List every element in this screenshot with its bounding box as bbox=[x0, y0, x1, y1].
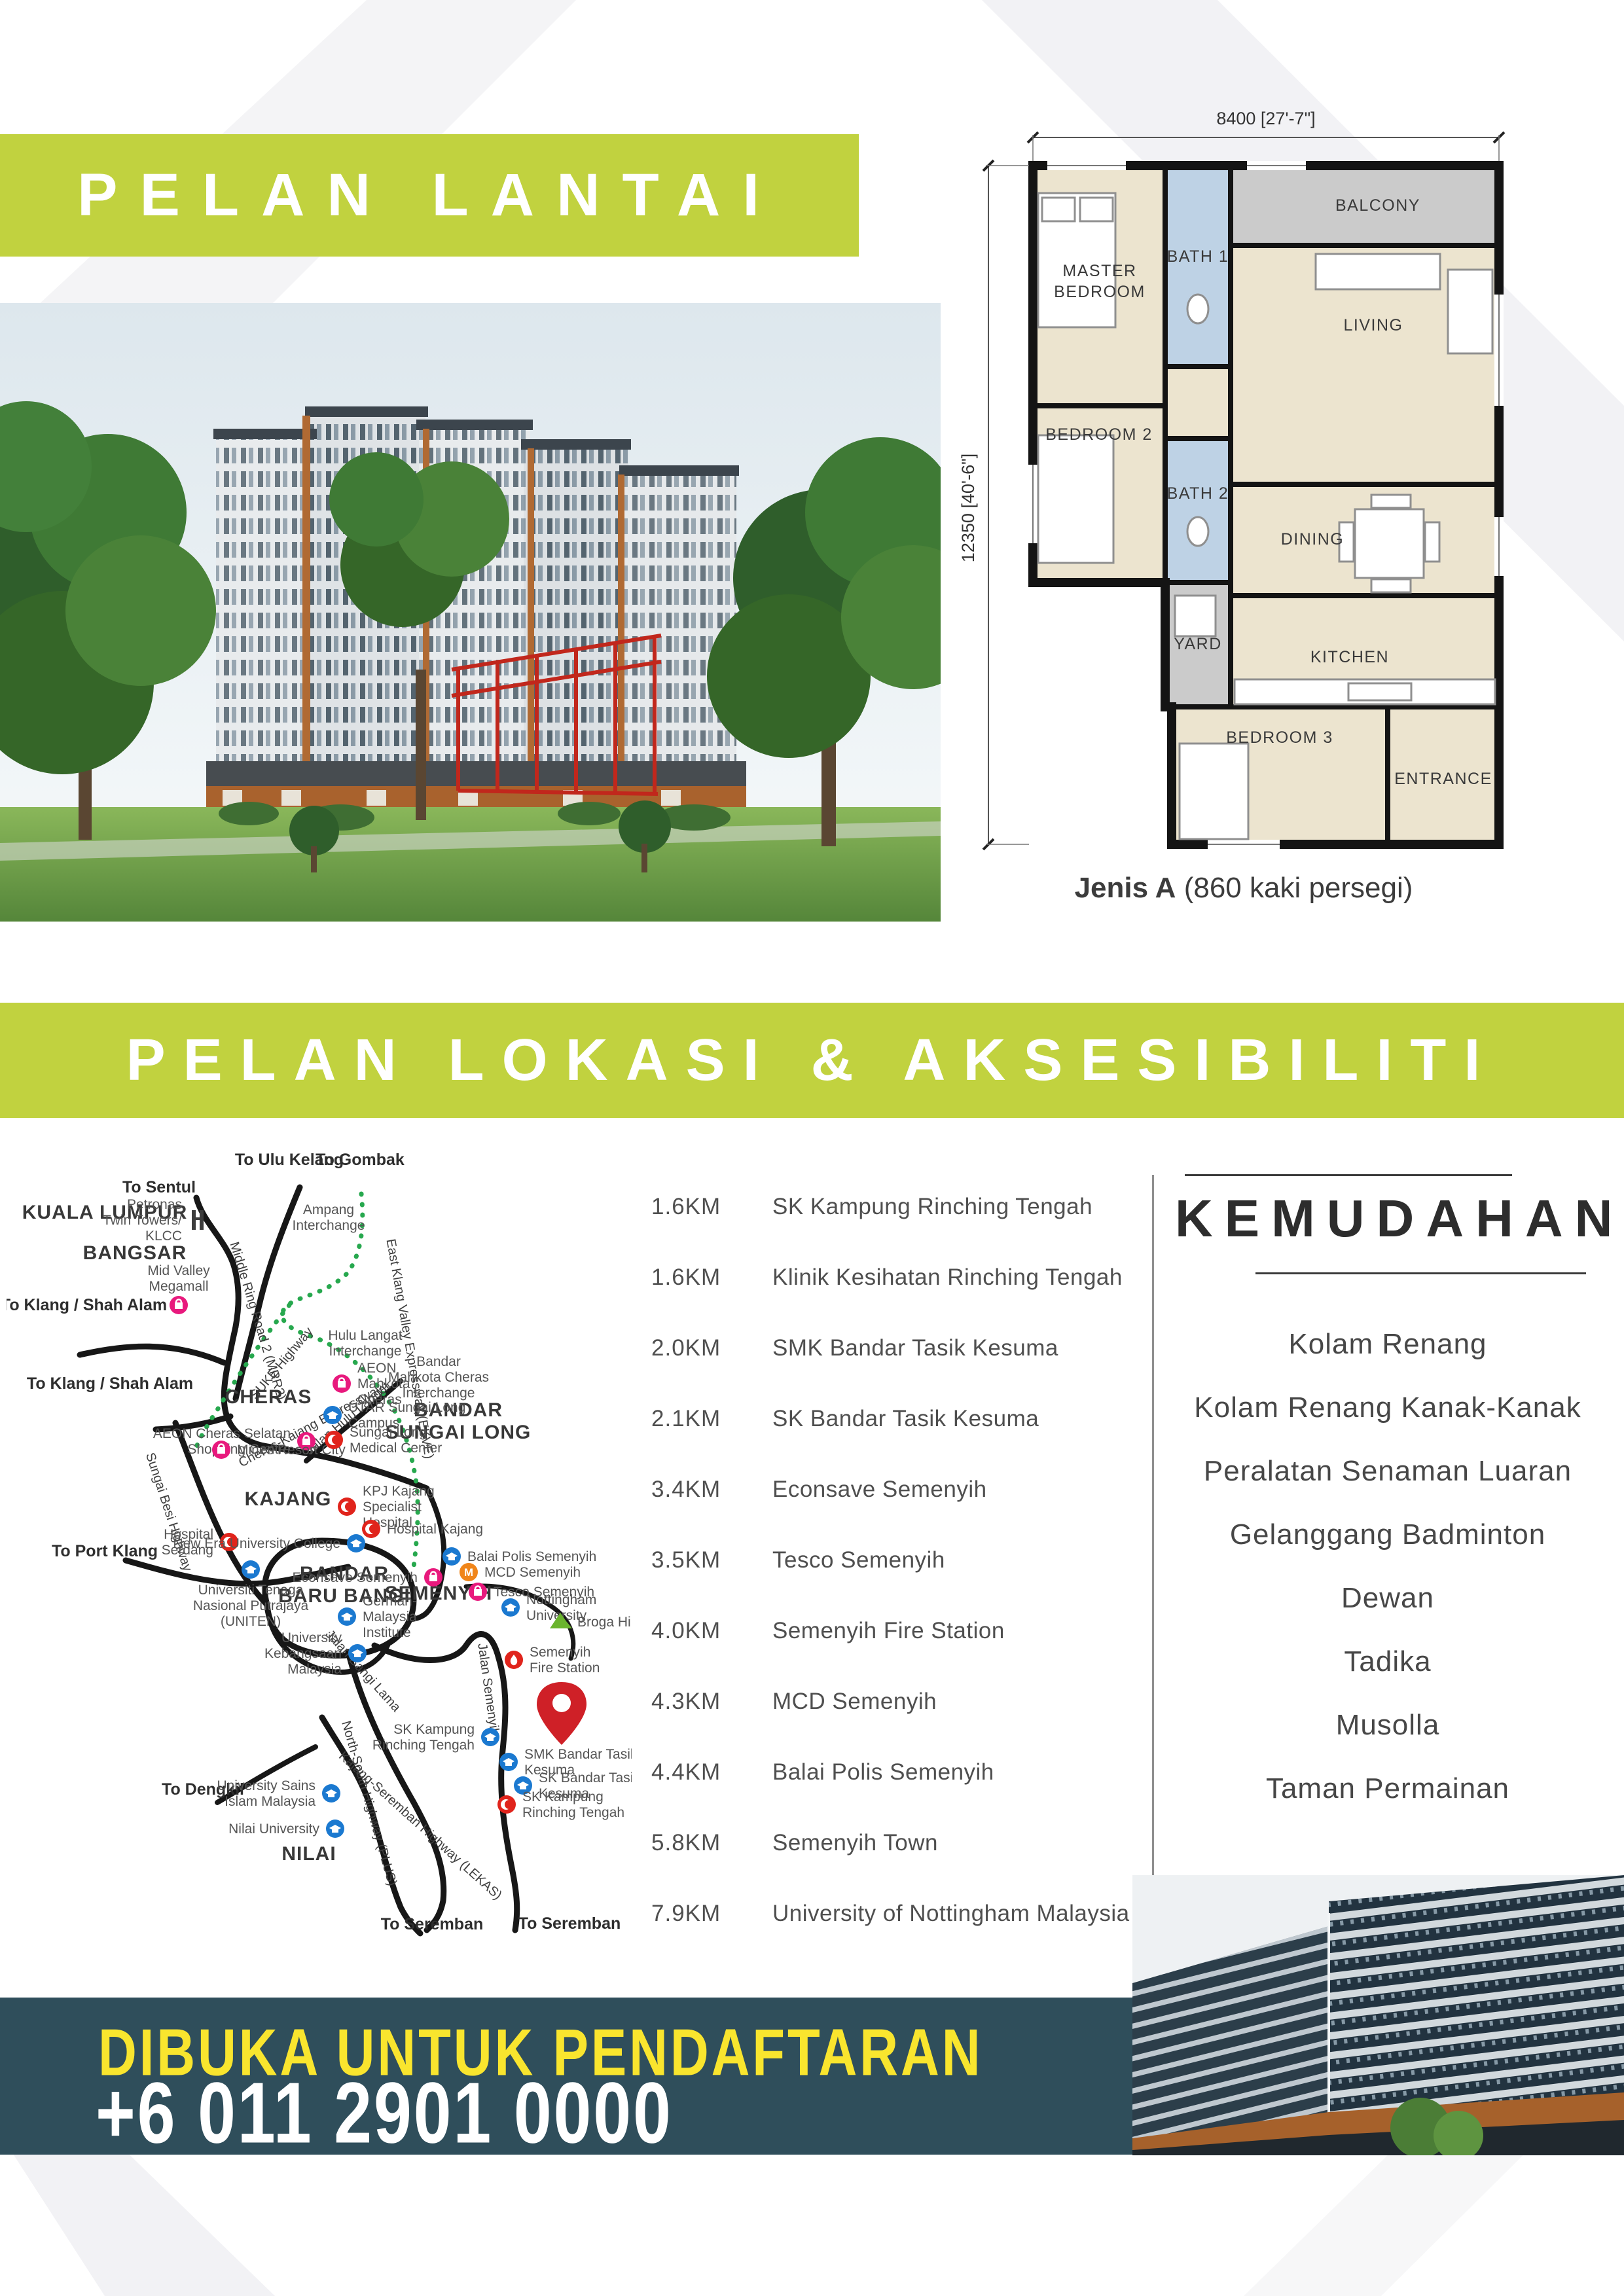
svg-text:New Era University College: New Era University College bbox=[173, 1536, 340, 1551]
distance-value: 2.1KM bbox=[651, 1406, 772, 1432]
location-section-band: PELAN LOKASI & AKSESIBILITI bbox=[0, 1003, 1624, 1118]
facility-item: Musolla bbox=[1166, 1693, 1609, 1757]
svg-text:CHERAS: CHERAS bbox=[225, 1386, 312, 1408]
svg-text:Mahkota Cheras: Mahkota Cheras bbox=[388, 1370, 489, 1385]
facilities-rule-bottom bbox=[1255, 1272, 1586, 1274]
distance-value: 3.4KM bbox=[651, 1477, 772, 1503]
svg-text:Bandar: Bandar bbox=[416, 1354, 461, 1369]
svg-text:SK Kampung: SK Kampung bbox=[522, 1789, 604, 1804]
svg-text:AEON Cheras Selatan: AEON Cheras Selatan bbox=[153, 1426, 291, 1441]
distance-row: 3.5KMTesco Semenyih bbox=[651, 1525, 1150, 1596]
unit-type-label: Jenis A bbox=[1075, 872, 1176, 904]
distance-place: University of Nottingham Malaysia bbox=[772, 1901, 1150, 1927]
floorplan-title: PELAN LANTAI bbox=[77, 161, 782, 230]
svg-text:BANGSAR: BANGSAR bbox=[83, 1242, 187, 1264]
svg-text:12350 [40'-6"]: 12350 [40'-6"] bbox=[958, 454, 978, 562]
svg-text:Medical Center: Medical Center bbox=[350, 1441, 442, 1456]
svg-text:To Seremban: To Seremban bbox=[381, 1915, 484, 1933]
facility-item: Dewan bbox=[1166, 1566, 1609, 1630]
svg-text:University: University bbox=[281, 1630, 342, 1645]
svg-text:Sungai Long: Sungai Long bbox=[350, 1425, 427, 1440]
distance-row: 1.6KMSK Kampung Rinching Tengah bbox=[651, 1172, 1150, 1242]
distance-place: SMK Bandar Tasik Kesuma bbox=[772, 1335, 1150, 1361]
distance-place: SK Kampung Rinching Tengah bbox=[772, 1194, 1150, 1220]
svg-text:To Port Klang: To Port Klang bbox=[52, 1542, 158, 1560]
unit-size-label: (860 kaki persegi) bbox=[1176, 872, 1413, 904]
facility-item: Tadika bbox=[1166, 1630, 1609, 1693]
phone-number: +6 011 2901 0000 bbox=[96, 2063, 673, 2162]
svg-text:M: M bbox=[464, 1566, 473, 1579]
svg-text:NILAI: NILAI bbox=[281, 1843, 336, 1865]
distance-value: 4.3KM bbox=[651, 1689, 772, 1715]
distance-place: Balai Polis Semenyih bbox=[772, 1759, 1150, 1785]
svg-text:KAJANG: KAJANG bbox=[245, 1488, 332, 1510]
svg-text:Ampang: Ampang bbox=[303, 1202, 354, 1217]
floorplan-caption: Jenis A (860 kaki persegi) bbox=[949, 872, 1538, 905]
distance-place: Klinik Kesihatan Rinching Tengah bbox=[772, 1265, 1150, 1291]
distance-row: 5.8KMSemenyih Town bbox=[651, 1808, 1150, 1878]
facility-item: Gelanggang Badminton bbox=[1166, 1503, 1609, 1566]
svg-text:To Seremban: To Seremban bbox=[518, 1914, 621, 1933]
floorplan-figure: MASTERBEDROOMBEDROOM 2BATH 1BATH 2YARDBA… bbox=[949, 98, 1538, 916]
svg-text:Malaysia: Malaysia bbox=[287, 1662, 342, 1677]
facility-item: Kolam Renang Kanak-Kanak bbox=[1166, 1376, 1609, 1439]
svg-text:Specialist: Specialist bbox=[363, 1499, 422, 1515]
distance-value: 1.6KM bbox=[651, 1194, 772, 1220]
distance-value: 3.5KM bbox=[651, 1547, 772, 1573]
svg-text:KLCC: KLCC bbox=[145, 1229, 182, 1244]
svg-text:MASTER: MASTER bbox=[1062, 262, 1136, 280]
svg-text:To Gombak: To Gombak bbox=[316, 1151, 405, 1169]
svg-text:SK Kampung: SK Kampung bbox=[393, 1722, 475, 1737]
facilities-list: Kolam RenangKolam Renang Kanak-KanakPera… bbox=[1166, 1312, 1609, 1820]
svg-text:SK Bandar Tasik: SK Bandar Tasik bbox=[539, 1770, 632, 1785]
distance-place: MCD Semenyih bbox=[772, 1689, 1150, 1715]
svg-text:Twin Towers/: Twin Towers/ bbox=[103, 1213, 182, 1228]
location-map: Sungai Besi HighwayMiddle Ring Road 2 (M… bbox=[7, 1147, 632, 1965]
svg-text:Semenyih: Semenyih bbox=[530, 1645, 590, 1660]
svg-text:Malaysia: Malaysia bbox=[363, 1609, 417, 1624]
facilities-title: KEMUDAHAN bbox=[1175, 1189, 1600, 1249]
svg-text:ENTRANCE: ENTRANCE bbox=[1394, 770, 1492, 788]
facility-item: Peralatan Senaman Luaran bbox=[1166, 1439, 1609, 1503]
distance-row: 4.3KMMCD Semenyih bbox=[651, 1666, 1150, 1737]
flyer-page: PELAN LANTAI bbox=[0, 0, 1624, 2296]
svg-text:Hulu Langat: Hulu Langat bbox=[328, 1328, 402, 1343]
svg-text:KPJ Kajang: KPJ Kajang bbox=[363, 1484, 435, 1499]
distance-row: 2.0KMSMK Bandar Tasik Kesuma bbox=[651, 1313, 1150, 1384]
svg-text:German-: German- bbox=[363, 1594, 417, 1609]
list-divider bbox=[1152, 1175, 1154, 1911]
apartment-towers bbox=[206, 406, 746, 808]
svg-text:Universiti Tenaga: Universiti Tenaga bbox=[198, 1583, 304, 1598]
svg-text:To Klang / Shah Alam: To Klang / Shah Alam bbox=[27, 1374, 193, 1393]
distance-value: 2.0KM bbox=[651, 1335, 772, 1361]
floorplan-section-band: PELAN LANTAI bbox=[0, 134, 859, 257]
distance-value: 4.4KM bbox=[651, 1759, 772, 1785]
facility-item: Taman Permainan bbox=[1166, 1757, 1609, 1820]
distance-value: 4.0KM bbox=[651, 1618, 772, 1644]
svg-text:To Sentul: To Sentul bbox=[122, 1178, 196, 1196]
svg-text:Megamall: Megamall bbox=[149, 1279, 208, 1294]
svg-text:KITCHEN: KITCHEN bbox=[1310, 648, 1389, 666]
svg-text:University Sains: University Sains bbox=[217, 1778, 316, 1793]
distance-value: 5.8KM bbox=[651, 1830, 772, 1856]
facility-item: Kolam Renang bbox=[1166, 1312, 1609, 1376]
svg-text:Interchange: Interchange bbox=[329, 1344, 402, 1359]
svg-text:BEDROOM 2: BEDROOM 2 bbox=[1045, 425, 1153, 444]
svg-text:BATH 1: BATH 1 bbox=[1167, 247, 1229, 266]
location-title: PELAN LOKASI & AKSESIBILITI bbox=[126, 1027, 1498, 1094]
svg-text:Nasional Putrajaya: Nasional Putrajaya bbox=[193, 1598, 309, 1613]
svg-text:MCD Semenyih: MCD Semenyih bbox=[484, 1565, 581, 1580]
distance-place: Semenyih Town bbox=[772, 1830, 1150, 1856]
distance-place: Tesco Semenyih bbox=[772, 1547, 1150, 1573]
svg-text:(UNITEN): (UNITEN) bbox=[221, 1614, 281, 1629]
facilities-rule-top bbox=[1185, 1174, 1512, 1176]
svg-text:BATH 2: BATH 2 bbox=[1167, 484, 1229, 503]
svg-text:Rinching Tengah: Rinching Tengah bbox=[372, 1738, 475, 1753]
svg-text:Econsave Semenyih: Econsave Semenyih bbox=[293, 1570, 418, 1585]
svg-text:To Klang / Shah Alam: To Klang / Shah Alam bbox=[7, 1296, 167, 1314]
distance-place: Econsave Semenyih bbox=[772, 1477, 1150, 1503]
distance-row: 2.1KMSK Bandar Tasik Kesuma bbox=[651, 1384, 1150, 1454]
svg-text:8400 [27'-7"]: 8400 [27'-7"] bbox=[1216, 109, 1315, 128]
building-rendering-photo bbox=[0, 303, 941, 922]
svg-text:Institute: Institute bbox=[363, 1625, 411, 1640]
svg-text:Mid Valley: Mid Valley bbox=[147, 1263, 210, 1278]
svg-text:Nilai University: Nilai University bbox=[228, 1821, 319, 1837]
svg-text:Kebangsaan: Kebangsaan bbox=[264, 1646, 342, 1661]
svg-text:Interchange: Interchange bbox=[293, 1218, 365, 1233]
distance-row: 7.9KMUniversity of Nottingham Malaysia bbox=[651, 1878, 1150, 1949]
distance-place: SK Bandar Tasik Kesuma bbox=[772, 1406, 1150, 1432]
distances-list: 1.6KMSK Kampung Rinching Tengah1.6KMKlin… bbox=[651, 1172, 1150, 1949]
svg-text:Balai Polis Semenyih: Balai Polis Semenyih bbox=[467, 1549, 596, 1564]
svg-text:Petronas: Petronas bbox=[127, 1197, 182, 1212]
svg-text:LIVING: LIVING bbox=[1344, 316, 1403, 334]
distance-row: 4.4KMBalai Polis Semenyih bbox=[651, 1737, 1150, 1808]
distance-value: 7.9KM bbox=[651, 1901, 772, 1927]
distance-row: 1.6KMKlinik Kesihatan Rinching Tengah bbox=[651, 1242, 1150, 1313]
svg-text:Interchange: Interchange bbox=[403, 1386, 475, 1401]
svg-text:BALCONY: BALCONY bbox=[1335, 196, 1420, 215]
svg-text:BEDROOM: BEDROOM bbox=[1054, 283, 1146, 301]
distance-row: 4.0KMSemenyih Fire Station bbox=[651, 1596, 1150, 1666]
svg-text:DINING: DINING bbox=[1281, 530, 1344, 548]
svg-text:Broga Hill: Broga Hill bbox=[577, 1615, 632, 1630]
svg-text:Fire Station: Fire Station bbox=[530, 1660, 600, 1676]
distance-row: 3.4KMEconsave Semenyih bbox=[651, 1454, 1150, 1525]
svg-text:Hospital Kajang: Hospital Kajang bbox=[387, 1522, 483, 1537]
distance-place: Semenyih Fire Station bbox=[772, 1618, 1150, 1644]
svg-text:SMK Bandar Tasik: SMK Bandar Tasik bbox=[524, 1747, 632, 1762]
svg-text:YARD: YARD bbox=[1174, 635, 1222, 653]
svg-text:BEDROOM 3: BEDROOM 3 bbox=[1226, 728, 1333, 747]
svg-text:Nottingham: Nottingham bbox=[526, 1592, 596, 1607]
svg-text:UTAR Sungai Long: UTAR Sungai Long bbox=[348, 1400, 465, 1415]
svg-text:Rinching Tengah: Rinching Tengah bbox=[522, 1805, 624, 1820]
distance-value: 1.6KM bbox=[651, 1265, 772, 1291]
tower-photo bbox=[1132, 1875, 1624, 2155]
svg-text:Islam Malaysia: Islam Malaysia bbox=[225, 1794, 316, 1809]
